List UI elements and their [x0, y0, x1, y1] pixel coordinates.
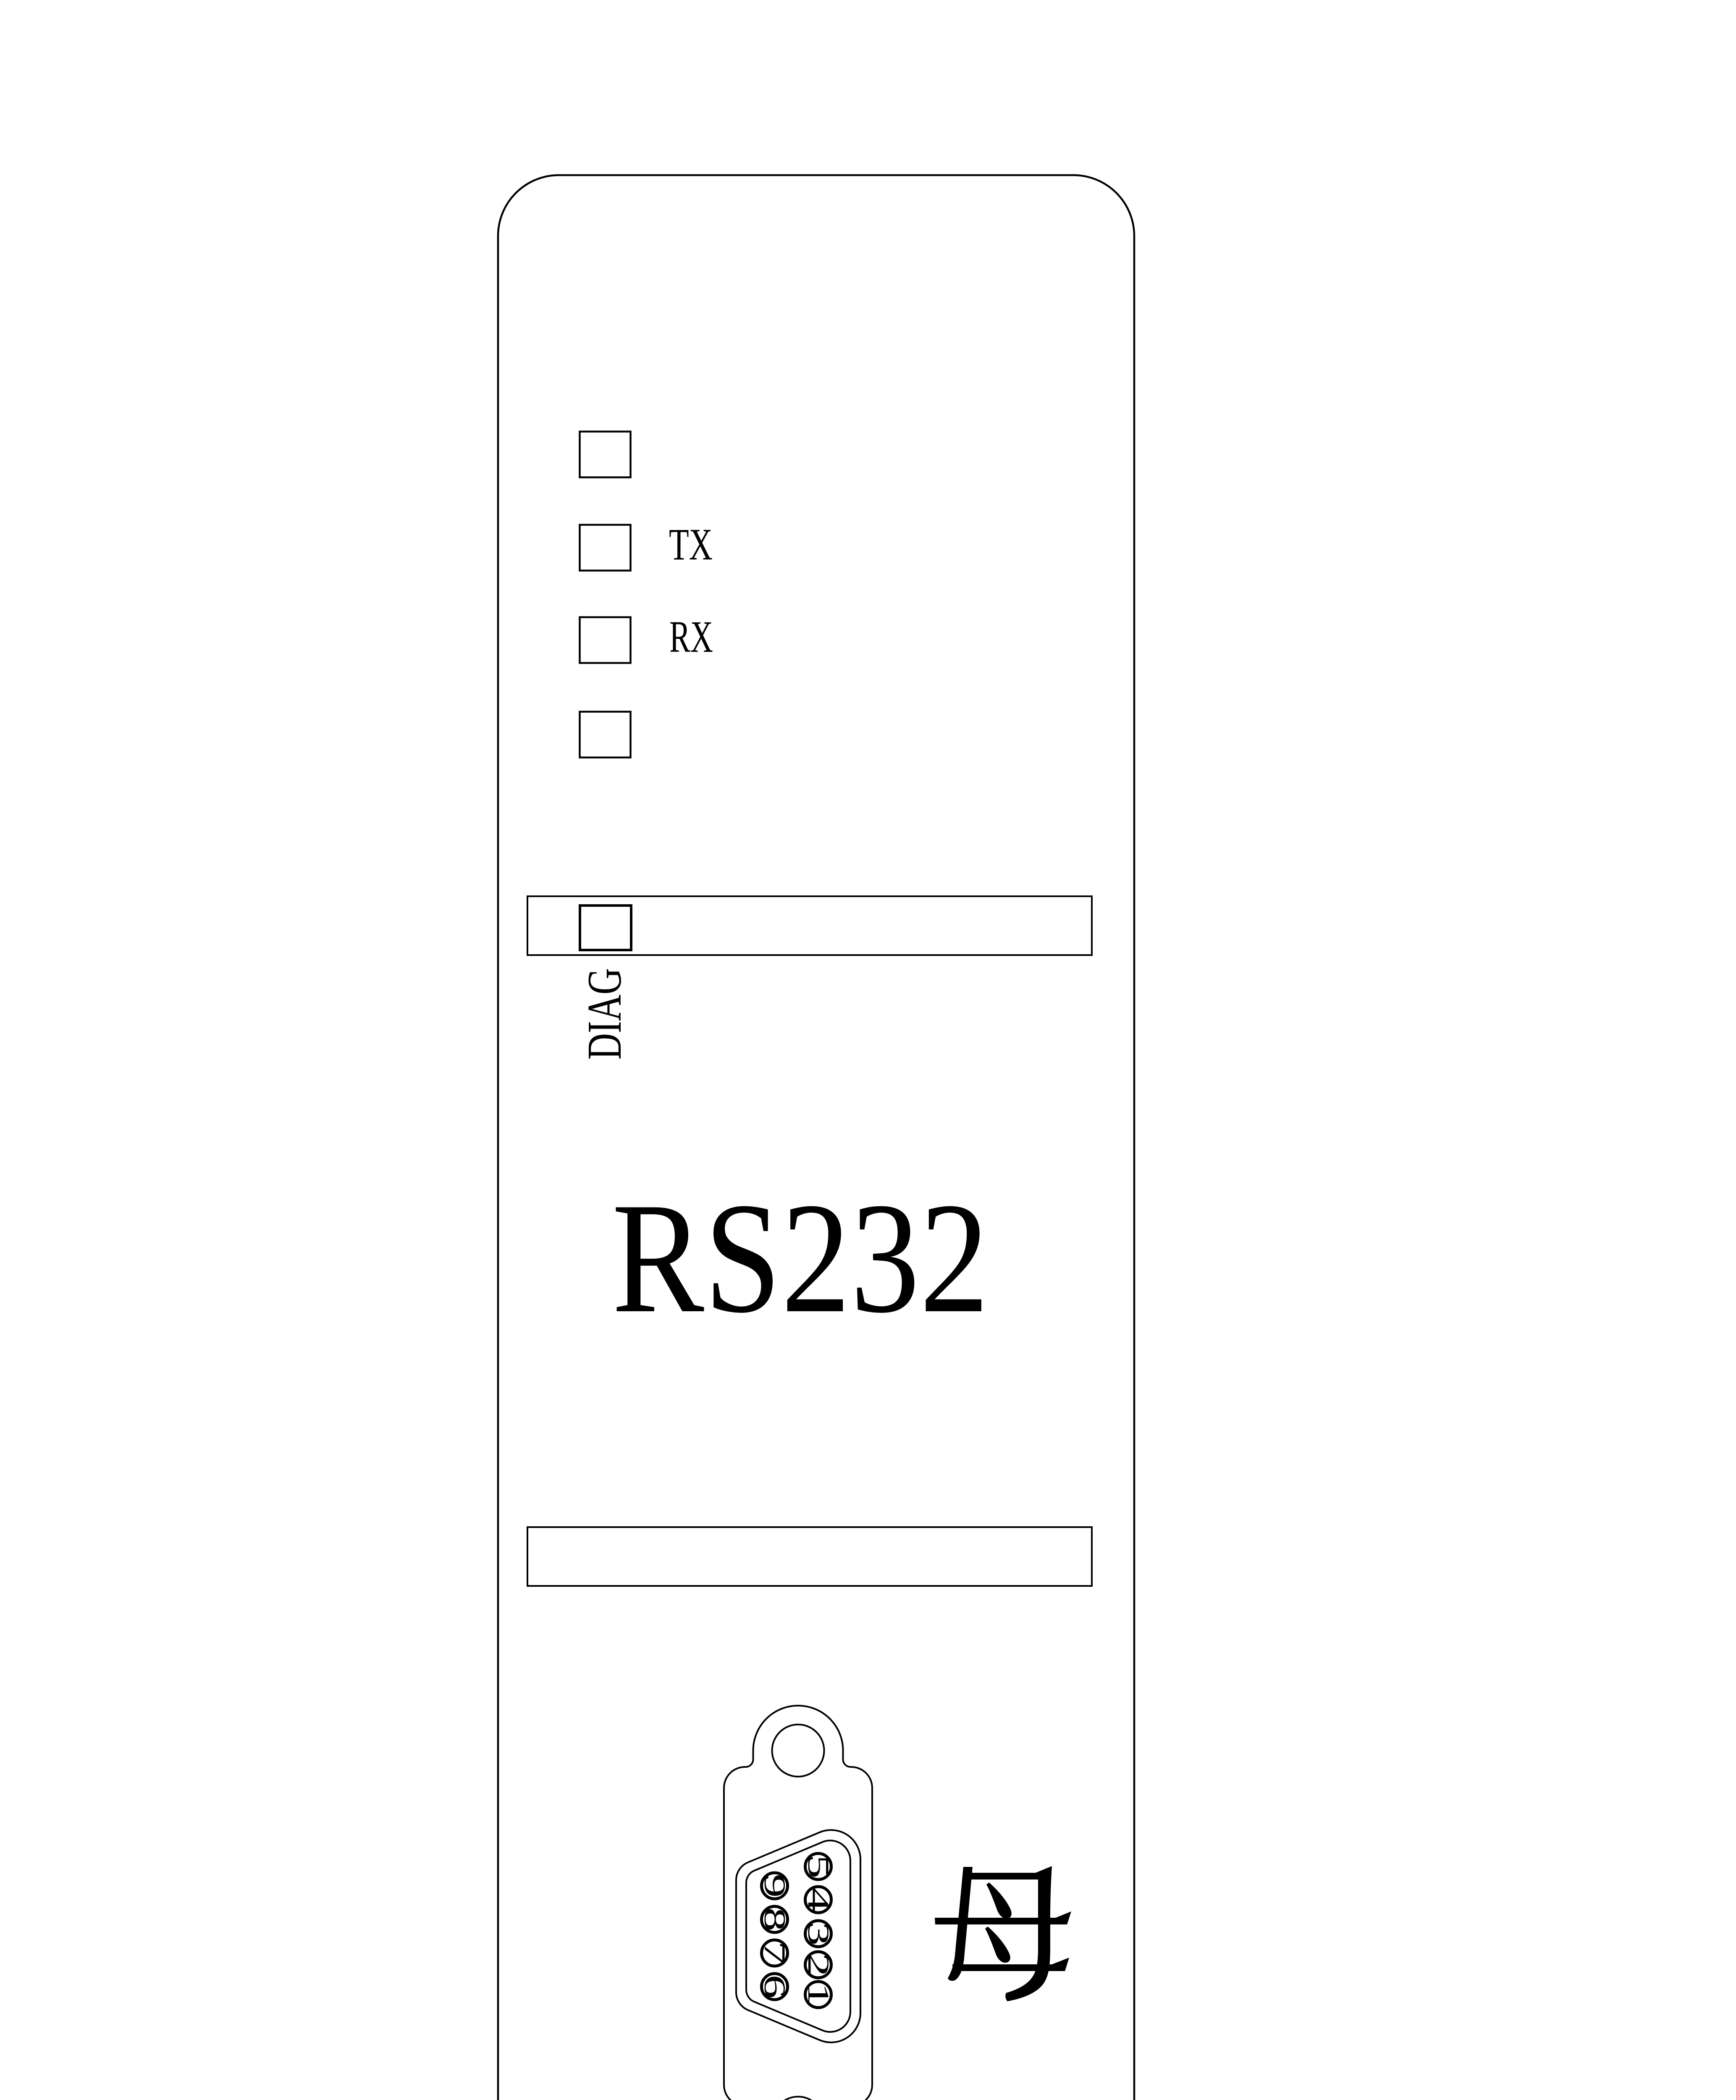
svg-text:7: 7	[758, 1941, 792, 1965]
svg-text:RX: RX	[669, 612, 713, 662]
svg-text:8: 8	[758, 1908, 792, 1932]
svg-text:1: 1	[802, 1983, 835, 2007]
svg-text:RS232: RS232	[612, 1170, 989, 1346]
svg-text:4: 4	[802, 1888, 835, 1912]
svg-text:5: 5	[802, 1855, 835, 1879]
svg-text:2: 2	[802, 1953, 835, 1977]
svg-text:DIAG: DIAG	[578, 968, 632, 1060]
svg-text:6: 6	[758, 1975, 792, 1999]
svg-text:9: 9	[758, 1874, 792, 1898]
svg-text:3: 3	[802, 1922, 835, 1946]
svg-text:TX: TX	[669, 520, 713, 570]
